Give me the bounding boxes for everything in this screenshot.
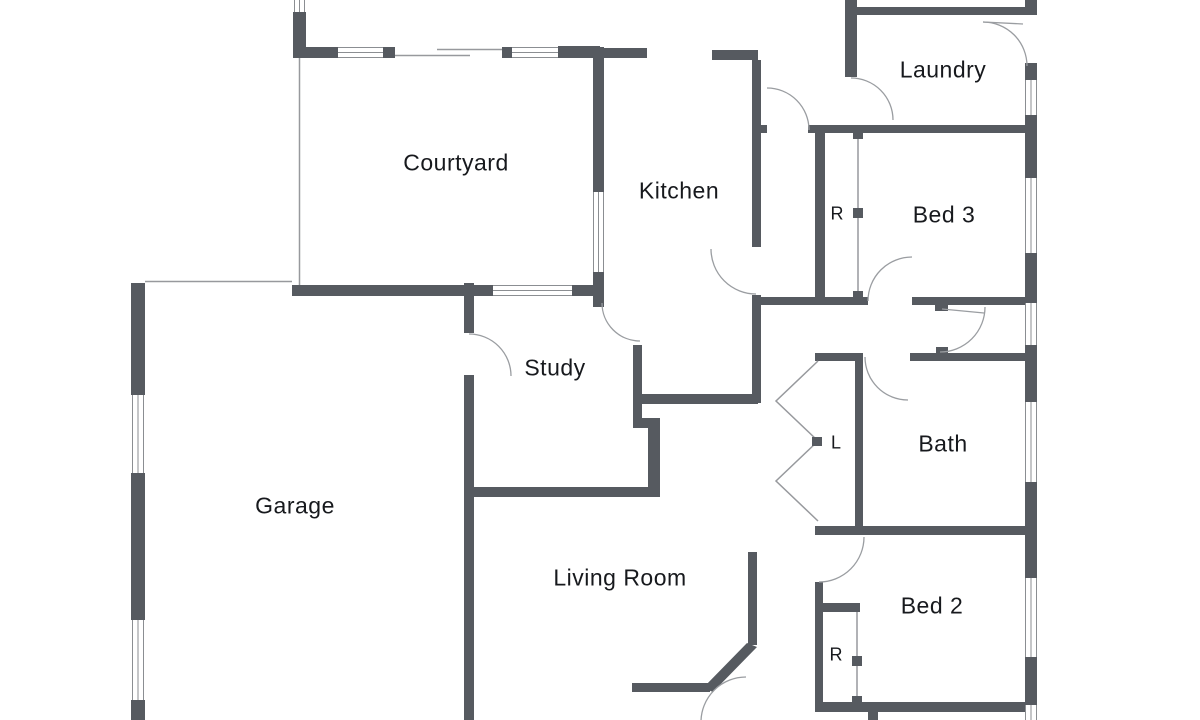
window bbox=[1025, 303, 1037, 345]
linen-accordion-door bbox=[776, 361, 818, 521]
room-label-living-room: Living Room bbox=[553, 565, 686, 592]
hall-door-leaf bbox=[942, 309, 984, 313]
bath-door bbox=[865, 357, 908, 400]
room-label-bed3: Bed 3 bbox=[913, 202, 976, 229]
floor-plan: Courtyard Kitchen Laundry Bed 3 Study Ba… bbox=[0, 0, 1200, 720]
window bbox=[512, 47, 558, 58]
closet-label-robe-bed2: R bbox=[830, 645, 843, 666]
laundry-right-door bbox=[983, 22, 1027, 66]
window bbox=[132, 620, 144, 700]
closet-label-robe-bed3: R bbox=[831, 204, 844, 225]
study-west-door bbox=[469, 334, 511, 376]
window bbox=[1025, 705, 1037, 720]
room-label-kitchen: Kitchen bbox=[639, 178, 719, 205]
floor-plan-drawing bbox=[0, 0, 1200, 720]
room-label-courtyard: Courtyard bbox=[403, 150, 508, 177]
room-label-bath: Bath bbox=[918, 431, 967, 458]
window bbox=[132, 395, 144, 473]
closet-label-linen: L bbox=[831, 433, 841, 454]
room-label-laundry: Laundry bbox=[900, 57, 987, 84]
robe3-handle bbox=[853, 208, 863, 218]
room-label-study: Study bbox=[524, 355, 585, 382]
window bbox=[294, 0, 305, 12]
window bbox=[593, 192, 604, 272]
upper-hall-door bbox=[767, 88, 809, 130]
window bbox=[493, 285, 572, 296]
hall-door bbox=[940, 307, 985, 352]
room-label-garage: Garage bbox=[255, 493, 335, 520]
robe2-handle bbox=[852, 656, 862, 666]
window bbox=[1025, 178, 1037, 253]
window bbox=[1025, 80, 1037, 115]
laundry-west-door bbox=[851, 78, 893, 120]
window bbox=[1025, 402, 1037, 482]
linen-handle bbox=[812, 437, 822, 446]
window bbox=[1025, 578, 1037, 657]
bed2-door bbox=[819, 537, 864, 582]
window bbox=[338, 47, 383, 58]
kitchen-door bbox=[711, 249, 756, 294]
room-label-bed2: Bed 2 bbox=[901, 593, 964, 620]
bed3-door bbox=[868, 257, 912, 301]
study-top-door bbox=[602, 303, 640, 341]
